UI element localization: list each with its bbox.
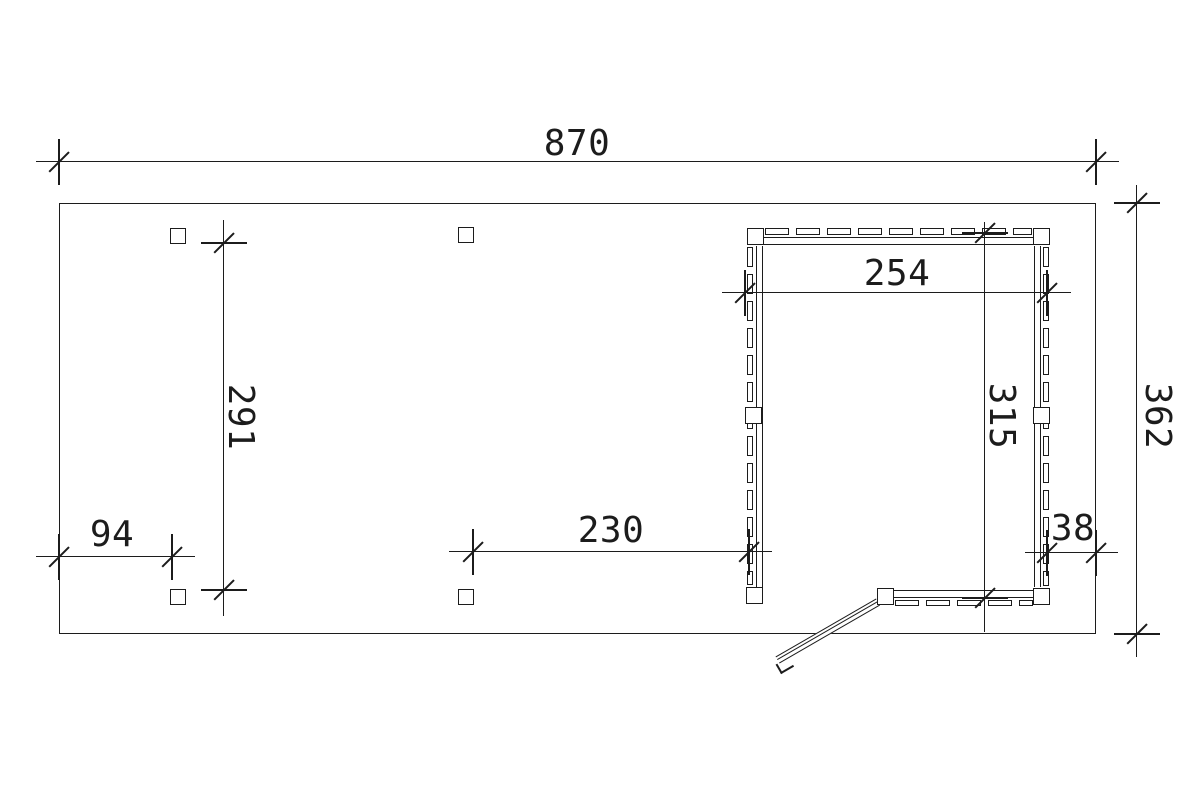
cladding-batten — [1013, 228, 1032, 235]
cladding-batten — [1019, 600, 1033, 606]
dim-label-870: 870 — [544, 126, 611, 162]
cladding-batten — [747, 301, 753, 321]
cladding-batten — [747, 382, 753, 402]
room-door-post — [877, 588, 894, 605]
cladding-batten — [1043, 247, 1049, 267]
post-bottom-middle — [458, 589, 474, 605]
dim-label-254: 254 — [864, 256, 931, 292]
cladding-batten — [889, 228, 913, 235]
cladding-batten — [747, 463, 753, 483]
room-wall-top — [764, 237, 1033, 245]
dim-label-230: 230 — [578, 513, 645, 549]
dim-line — [1025, 552, 1118, 553]
cladding-batten — [988, 600, 1012, 606]
room-post-mid-left — [745, 407, 762, 424]
cladding-batten — [747, 247, 753, 267]
cladding-batten — [1043, 436, 1049, 456]
cladding-batten — [747, 490, 753, 510]
room-wall-bottom-cladding — [894, 600, 1034, 606]
cladding-batten — [827, 228, 851, 235]
door-handle — [776, 657, 794, 674]
cladding-batten — [1043, 490, 1049, 510]
dim-label-315: 315 — [983, 383, 1019, 450]
cladding-batten — [747, 436, 753, 456]
room-post-mid-right — [1033, 407, 1050, 424]
floor-plan-canvas: 870 362 291 94 230 254 315 — [0, 0, 1200, 800]
cladding-batten — [765, 228, 789, 235]
cladding-batten — [1043, 355, 1049, 375]
dim-line — [449, 551, 772, 552]
cladding-batten — [1043, 382, 1049, 402]
dim-label-362: 362 — [1139, 383, 1175, 450]
dim-label-38: 38 — [1051, 511, 1095, 547]
room-post-bottom-right — [1033, 588, 1050, 605]
dim-label-291: 291 — [222, 384, 258, 451]
post-top-left — [170, 228, 186, 244]
room-post-bottom-left — [746, 587, 763, 604]
cladding-batten — [895, 600, 919, 606]
cladding-batten — [858, 228, 882, 235]
dim-label-94: 94 — [90, 517, 134, 553]
cladding-batten — [796, 228, 820, 235]
cladding-batten — [747, 355, 753, 375]
post-top-middle — [458, 227, 474, 243]
room-post-top-left — [747, 228, 764, 245]
room-post-top-right — [1033, 228, 1050, 245]
cladding-batten — [926, 600, 950, 606]
cladding-batten — [1043, 463, 1049, 483]
carport-outline — [59, 203, 1096, 634]
cladding-batten — [920, 228, 944, 235]
cladding-batten — [1043, 328, 1049, 348]
cladding-batten — [747, 328, 753, 348]
post-bottom-left — [170, 589, 186, 605]
